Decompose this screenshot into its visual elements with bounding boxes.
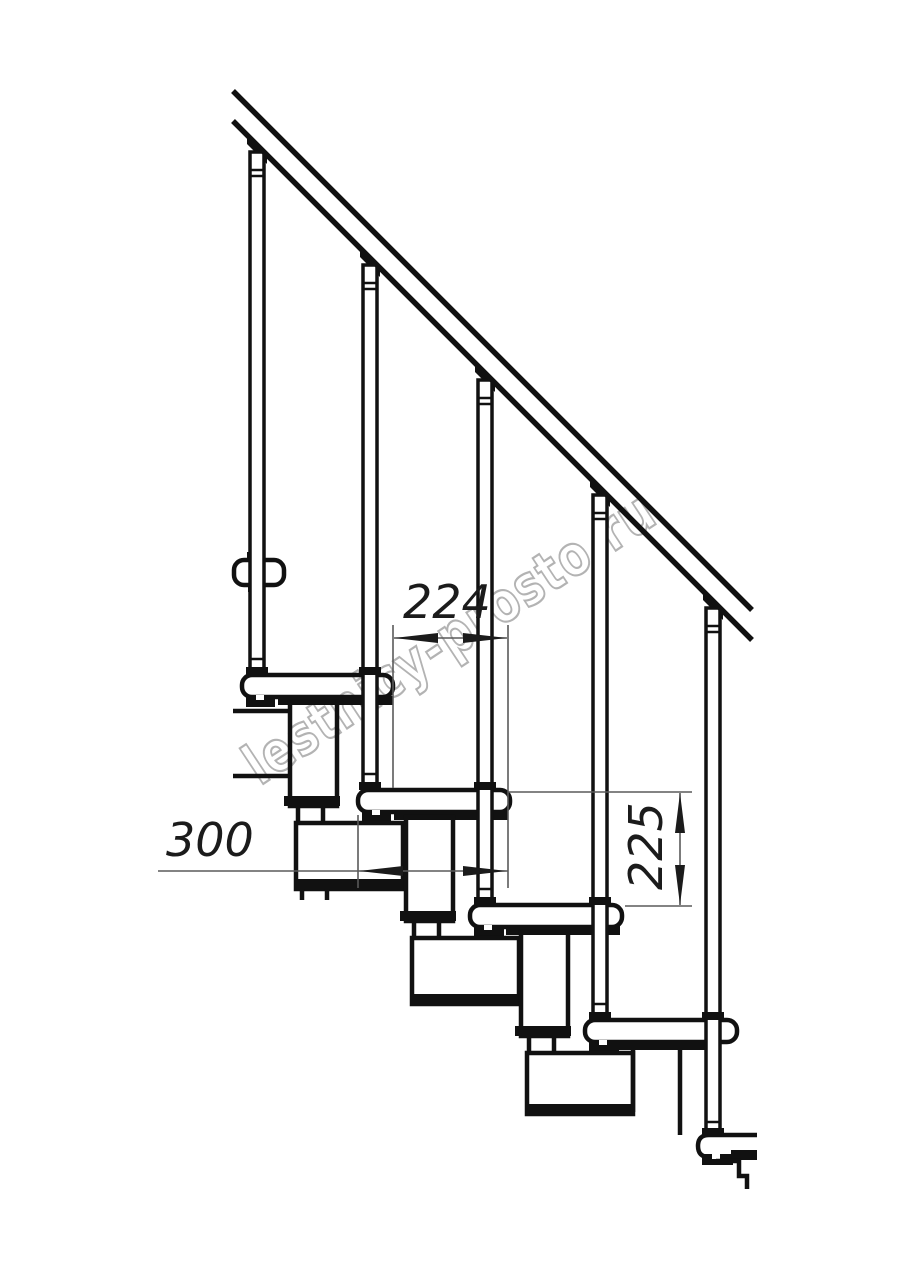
dim-label-300: 300	[166, 813, 254, 867]
staircase-drawing-canvas: lestnicy-prosto.ru	[0, 0, 914, 1280]
bottom-cut-zigzag	[716, 1161, 747, 1189]
dim-label-224: 224	[403, 575, 491, 629]
baluster-5	[702, 594, 724, 1135]
baluster-1	[246, 138, 268, 675]
dim-label-225: 225	[619, 802, 673, 890]
baluster-2	[359, 251, 381, 790]
baluster-4	[589, 481, 611, 1020]
staircase-technical-drawing: lestnicy-prosto.ru	[0, 0, 914, 1280]
module-tube-2	[406, 817, 453, 921]
module-tube-3	[521, 932, 568, 1036]
